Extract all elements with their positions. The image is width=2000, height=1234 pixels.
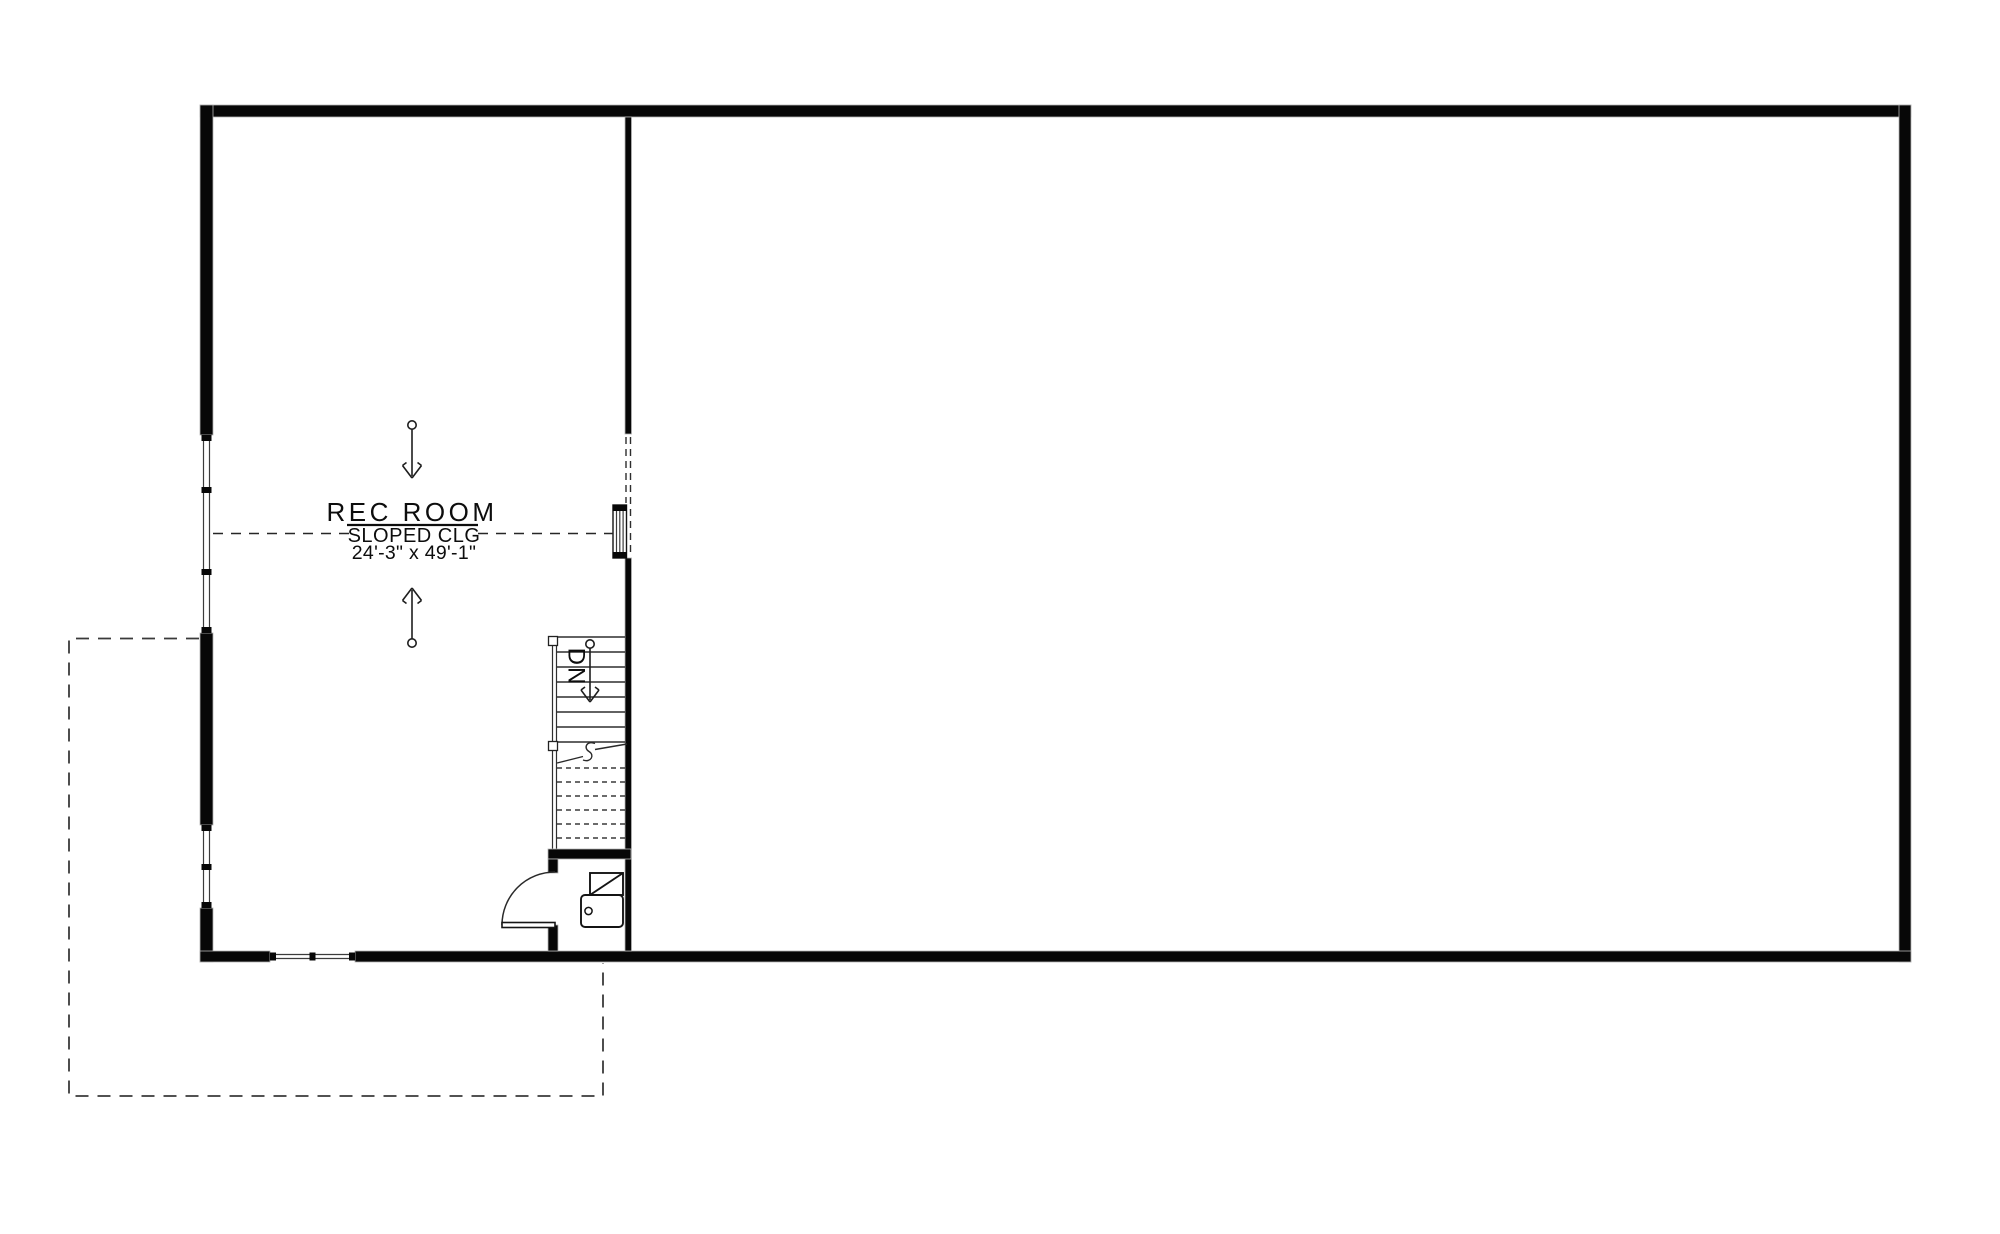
- window-mullion: [202, 864, 212, 870]
- room-label-block: REC ROOM SLOPED CLG 24'-3" x 49'-1": [327, 497, 498, 564]
- bottom-wall-right: [355, 951, 1911, 962]
- floor-plan-drawing: DN REC ROOM: [0, 0, 2000, 1234]
- closet-west-wall-lower: [548, 925, 558, 951]
- window-mullion: [202, 569, 212, 575]
- closet-north-wall: [548, 849, 631, 859]
- room-dimensions: 24'-3" x 49'-1": [352, 542, 476, 564]
- bottom-wall-left: [200, 951, 270, 962]
- slope-arrow-down: [403, 421, 422, 478]
- stair-break-line: [557, 743, 627, 763]
- top-wall: [200, 105, 1911, 117]
- closet-under-stairs: [502, 849, 631, 951]
- stair-direction-label: DN: [563, 648, 590, 687]
- interior-window: [613, 505, 628, 558]
- left-window-upper: [202, 435, 212, 633]
- interior-wall-upper: [625, 117, 632, 434]
- closet-fixture-unit: [581, 895, 623, 927]
- room-name: REC ROOM: [327, 497, 498, 527]
- stairs: DN: [549, 637, 628, 850]
- floor-plan-canvas: DN REC ROOM: [0, 0, 2000, 1234]
- bottom-window: [270, 953, 355, 961]
- right-wall: [1899, 105, 1911, 962]
- window-mullion: [202, 487, 212, 493]
- window-mullion: [310, 953, 316, 961]
- door-leaf: [502, 923, 555, 928]
- closet-fixture-shelf: [590, 873, 623, 895]
- left-wall-upper: [200, 105, 213, 435]
- door-swing-arc: [502, 872, 555, 925]
- closet-west-wall-upper: [548, 859, 558, 873]
- left-window-lower: [202, 825, 212, 908]
- left-wall-middle: [200, 633, 213, 825]
- stair-railing: [549, 637, 558, 850]
- closet-door: [502, 872, 555, 928]
- slope-arrow-up: [403, 588, 422, 647]
- interior-wall-lower: [625, 558, 632, 951]
- dashed-outline-below: [69, 639, 603, 1097]
